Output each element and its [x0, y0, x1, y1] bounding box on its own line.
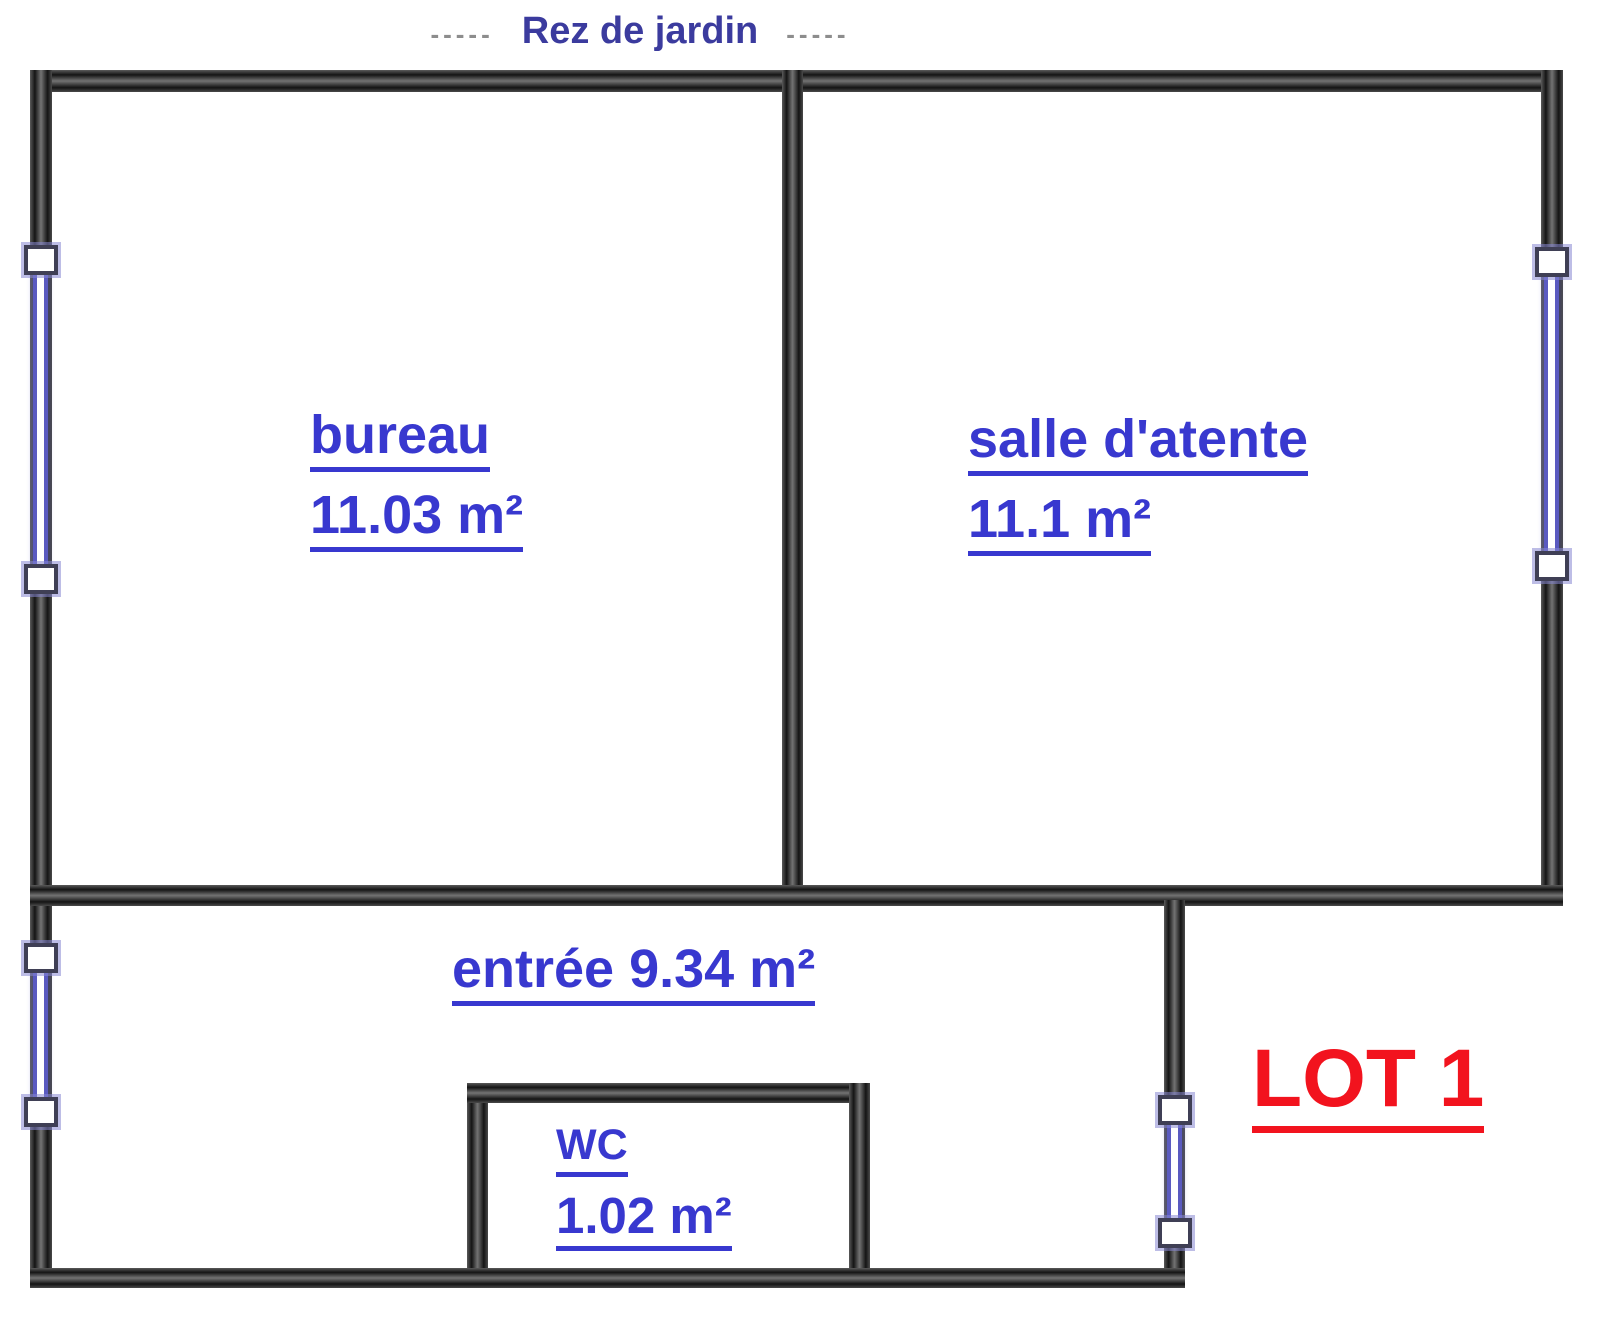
title-left-dashes: ----- — [430, 19, 493, 50]
wall-partition-bureau-salle — [782, 70, 803, 906]
room-label-wc: WC 1.02 m² — [556, 1124, 732, 1251]
title-right-dashes: ----- — [786, 19, 849, 50]
wall-bottom — [30, 1268, 1185, 1288]
floor-title-text: Rez de jardin — [522, 10, 759, 53]
salle-attente-area: 11.1 m² — [968, 492, 1151, 556]
wc-area: 1.02 m² — [556, 1190, 732, 1251]
wc-name: WC — [556, 1124, 628, 1177]
lot-label: LOT 1 — [1252, 1038, 1484, 1133]
window-left-upper-glass — [33, 262, 48, 574]
window-right-jamb-bottom-icon — [1535, 551, 1569, 581]
window-right-glass — [1544, 262, 1559, 562]
wall-interior-horizontal — [30, 885, 1563, 906]
bureau-area: 11.03 m² — [310, 488, 523, 552]
window-left-lower-glass — [33, 960, 48, 1110]
wc-wall-right — [849, 1083, 870, 1268]
floor-plan: ----- Rez de jardin ----- bureau 11.03 m… — [0, 0, 1600, 1325]
lot-label-text: LOT 1 — [1252, 1038, 1484, 1133]
window-entree-right-glass — [1167, 1110, 1182, 1232]
salle-attente-name: salle d'atente — [968, 412, 1308, 476]
room-label-bureau: bureau 11.03 m² — [310, 408, 523, 552]
entree-label: entrée 9.34 m² — [452, 942, 815, 1006]
window-left-lower-jamb-top-icon — [24, 943, 58, 973]
wc-wall-top — [467, 1083, 870, 1103]
window-left-upper-jamb-bottom-icon — [24, 564, 58, 594]
window-left-upper-jamb-top-icon — [24, 245, 58, 275]
bureau-name: bureau — [310, 408, 490, 472]
room-label-salle-attente: salle d'atente 11.1 m² — [968, 412, 1308, 556]
window-right-jamb-top-icon — [1535, 247, 1569, 277]
window-left-lower-jamb-bottom-icon — [24, 1097, 58, 1127]
room-label-entree: entrée 9.34 m² — [452, 942, 815, 1006]
wc-wall-left — [467, 1083, 488, 1268]
floor-title: ----- Rez de jardin ----- — [240, 10, 1040, 53]
window-entree-right-jamb-top-icon — [1158, 1095, 1192, 1125]
window-entree-right-jamb-bottom-icon — [1158, 1218, 1192, 1248]
